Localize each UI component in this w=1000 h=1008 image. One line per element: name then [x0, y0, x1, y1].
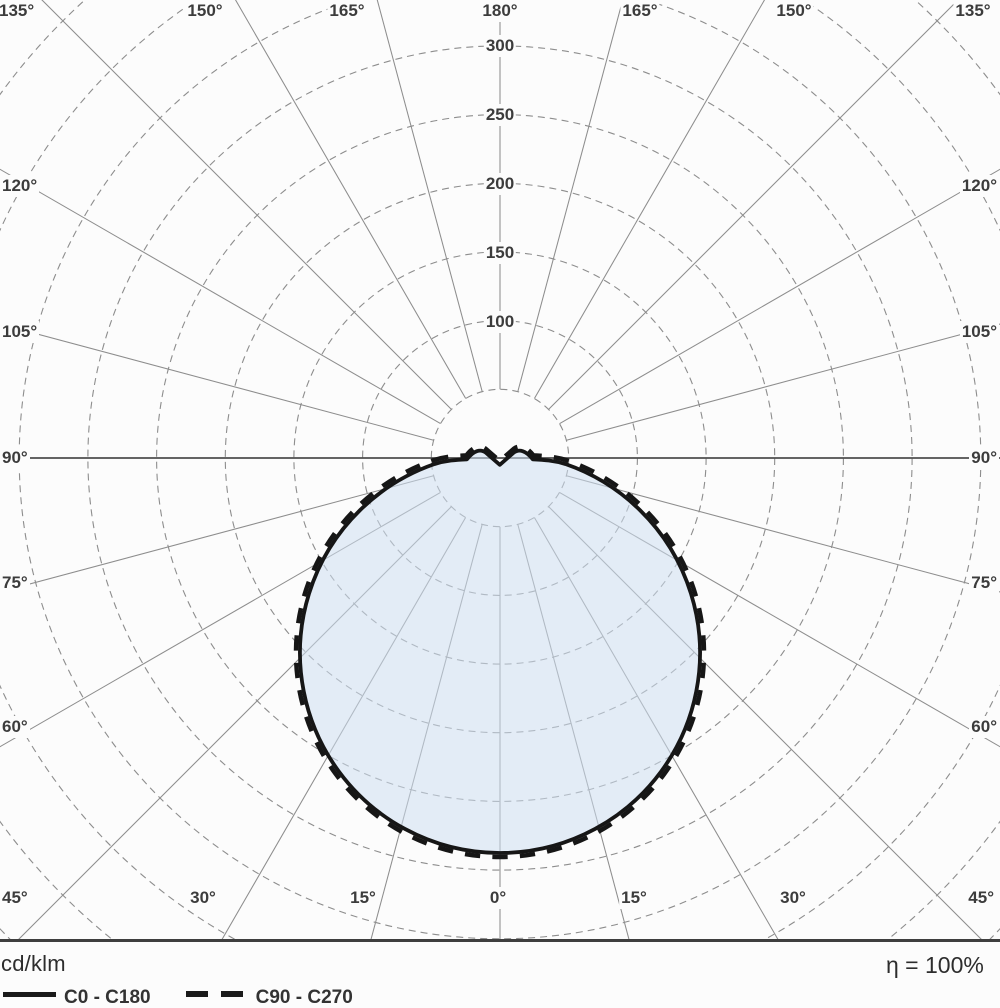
legend-dashed-line-swatch [186, 991, 243, 997]
angle-tick-label: 105° [960, 321, 999, 343]
angle-tick-label: 60° [969, 716, 999, 738]
polar-grid-spoke [518, 0, 694, 392]
angle-tick-label: 90° [969, 447, 999, 469]
radial-tick-label: 100 [484, 311, 516, 333]
angle-tick-label: 75° [969, 572, 999, 594]
polar-grid-spoke [566, 264, 1000, 440]
radial-tick-label: 200 [484, 173, 516, 195]
photometric-polar-chart: 135°150°165°180°165°150°135°120°105°90°7… [0, 0, 1000, 1000]
polar-grid-spoke [560, 83, 1000, 424]
radial-tick-label: 300 [484, 35, 516, 57]
polar-grid-spoke [306, 0, 482, 392]
angle-tick-label: 180° [480, 0, 519, 22]
polar-grid-spoke [0, 83, 441, 424]
polar-grid-spoke [549, 0, 1000, 409]
polar-grid-canvas [0, 0, 1000, 941]
angle-tick-label: 15° [348, 887, 378, 909]
angle-tick-label: 75° [0, 572, 30, 594]
radial-tick-label: 150 [484, 242, 516, 264]
angle-tick-label: 135° [953, 0, 992, 22]
legend: C0 - C180 C90 - C270 [3, 985, 353, 1008]
angle-tick-label: 45° [0, 887, 30, 909]
legend-label-c90-c270: C90 - C270 [256, 987, 353, 1008]
radial-tick-label: 250 [484, 104, 516, 126]
legend-solid-line-swatch [3, 992, 56, 997]
angle-tick-label: 165° [620, 0, 659, 22]
chart-bottom-border [0, 939, 1000, 942]
polar-grid-spoke [534, 0, 875, 399]
angle-tick-label: 120° [960, 175, 999, 197]
angle-tick-label: 30° [188, 887, 218, 909]
angle-tick-label: 30° [778, 887, 808, 909]
polar-grid-spoke [0, 0, 451, 409]
angle-tick-label: 165° [327, 0, 366, 22]
legend-label-c0-c180: C0 - C180 [64, 987, 151, 1008]
angle-tick-label: 45° [966, 887, 996, 909]
angle-tick-label: 120° [0, 175, 39, 197]
efficiency-label: η = 100% [886, 952, 984, 979]
angle-tick-label: 60° [0, 716, 30, 738]
angle-tick-label: 150° [185, 0, 224, 22]
unit-label: cd/klm [1, 951, 66, 977]
angle-tick-label: 135° [0, 0, 36, 22]
angle-tick-label: 90° [0, 447, 30, 469]
angle-tick-label: 0° [488, 887, 508, 909]
polar-grid-spoke [0, 264, 434, 440]
angle-tick-label: 15° [619, 887, 649, 909]
polar-grid-spoke [125, 0, 466, 399]
angle-tick-label: 150° [774, 0, 813, 22]
angle-tick-label: 105° [0, 321, 39, 343]
